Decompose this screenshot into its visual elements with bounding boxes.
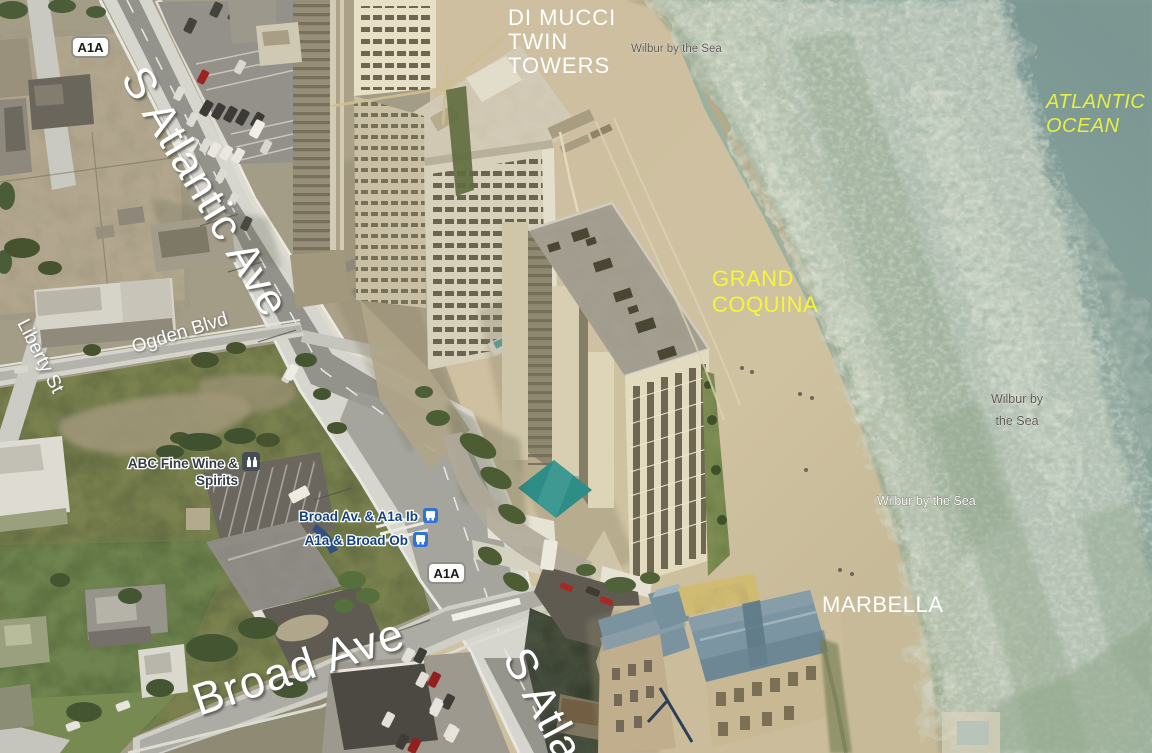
svg-text:Wilbur by the Sea: Wilbur by the Sea [877, 494, 976, 508]
svg-text:Broad Av. & A1a Ib: Broad Av. & A1a Ib [299, 509, 418, 524]
svg-text:A1a & Broad Ob: A1a & Broad Ob [304, 533, 408, 548]
svg-text:TWIN: TWIN [508, 29, 568, 54]
svg-text:Wilbur by the Sea: Wilbur by the Sea [631, 43, 722, 55]
svg-text:Wilbur by: Wilbur by [991, 392, 1044, 406]
svg-text:A1A: A1A [433, 566, 460, 581]
svg-text:the Sea: the Sea [995, 414, 1038, 428]
svg-text:MARBELLA: MARBELLA [822, 592, 943, 617]
svg-text:DI MUCCI: DI MUCCI [508, 5, 616, 30]
svg-text:A1A: A1A [77, 40, 104, 55]
svg-text:Spirits: Spirits [196, 473, 238, 488]
svg-text:ATLANTIC: ATLANTIC [1045, 91, 1145, 113]
svg-text:ABC Fine Wine &: ABC Fine Wine & [128, 456, 238, 471]
svg-text:GRAND: GRAND [712, 266, 794, 291]
svg-text:COQUINA: COQUINA [712, 292, 818, 317]
svg-text:TOWERS: TOWERS [508, 53, 610, 78]
svg-text:OCEAN: OCEAN [1046, 115, 1120, 137]
